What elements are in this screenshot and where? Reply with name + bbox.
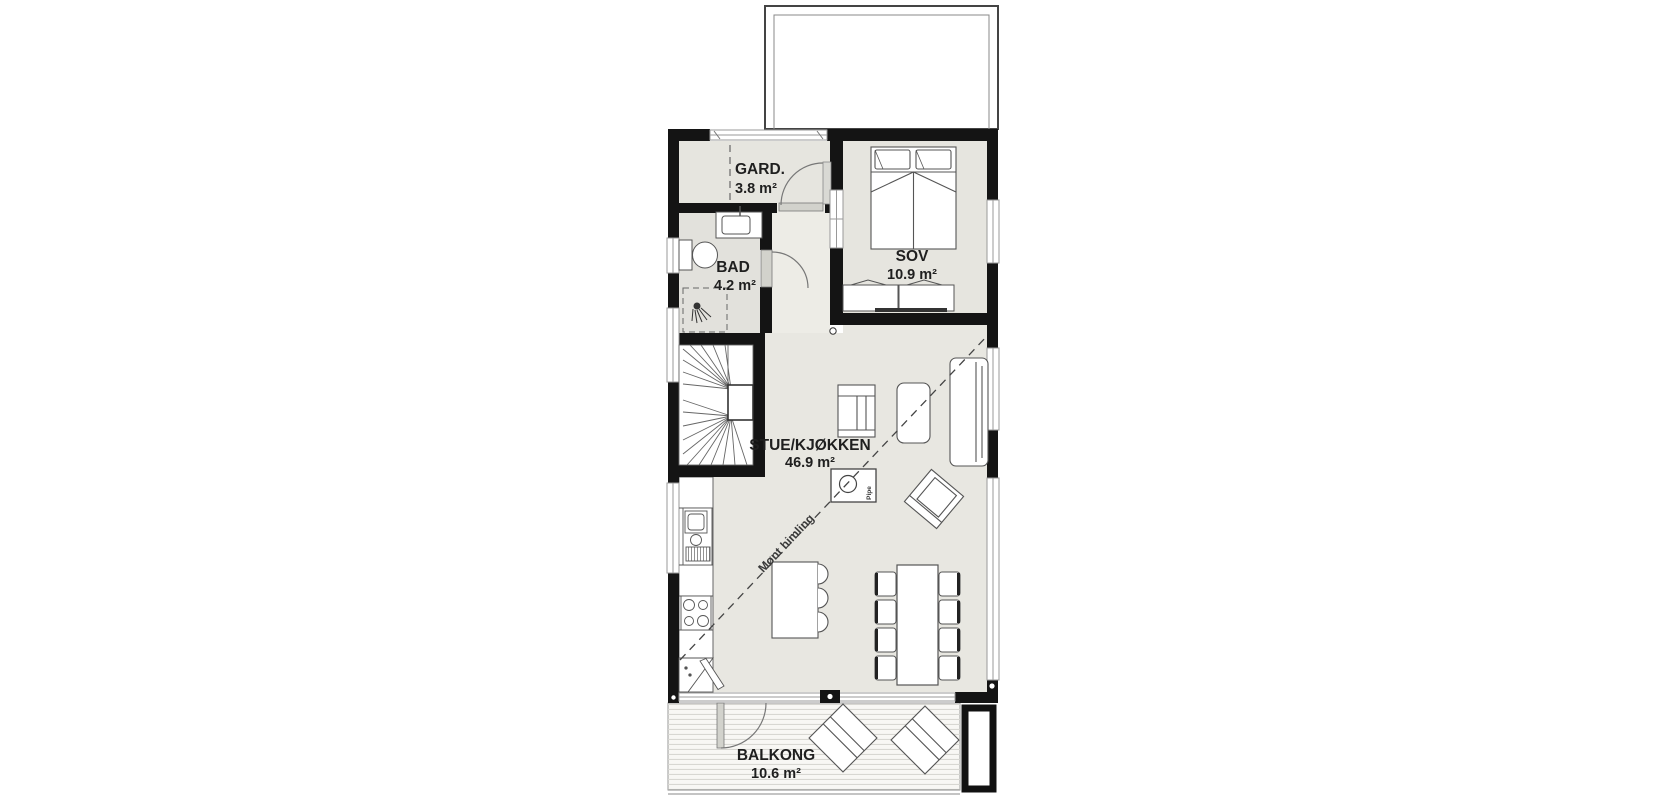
room-stue-floor-right [843,325,987,337]
stue-label: STUE/KJØKKEN [749,437,870,454]
armchair-left [838,385,875,437]
cooktop [681,596,711,630]
sofa [950,358,988,466]
bad-label: BAD [716,259,750,276]
balcony-side-screen [965,708,993,789]
balkong-label: BALKONG [737,747,815,764]
gard-label: GARD. [735,161,785,178]
dining-table [897,565,938,685]
window-sov-right [987,200,999,263]
window-top-entry [710,130,827,140]
toilet [679,240,718,270]
sov-area: 10.9 m² [887,267,937,283]
chimney: Pipe [831,469,876,502]
window-living-right-upper [987,348,999,430]
entrance-terrace [765,6,998,129]
window-bad-left [667,238,679,273]
sov-door-opening [830,190,843,248]
gard-area: 3.8 m² [735,181,777,197]
floorplan-drawing: Pipe Mønt himling GARD. 3.8 m² BAD 4.2 m… [0,0,1670,800]
window-kitchen-left [667,483,679,573]
double-bed [871,147,956,249]
room-hall-floor [772,203,830,345]
sliding-glass-door-bottom [679,693,955,701]
bedroom-bench [843,280,954,312]
window-living-right-lower [987,478,999,680]
bad-area: 4.2 m² [714,278,756,294]
wall-end-marker [830,328,836,334]
kitchen-sink-unit [683,508,712,565]
sov-label: SOV [896,248,929,265]
kitchen-island [772,562,828,638]
chimney-label: Pipe [866,486,873,500]
floorplan-canvas: Pipe Mønt himling GARD. 3.8 m² BAD 4.2 m… [0,0,1670,800]
balkong-area: 10.6 m² [751,766,801,782]
staircase [679,345,753,465]
stue-area: 46.9 m² [785,455,835,471]
window-stair-left [667,308,679,382]
